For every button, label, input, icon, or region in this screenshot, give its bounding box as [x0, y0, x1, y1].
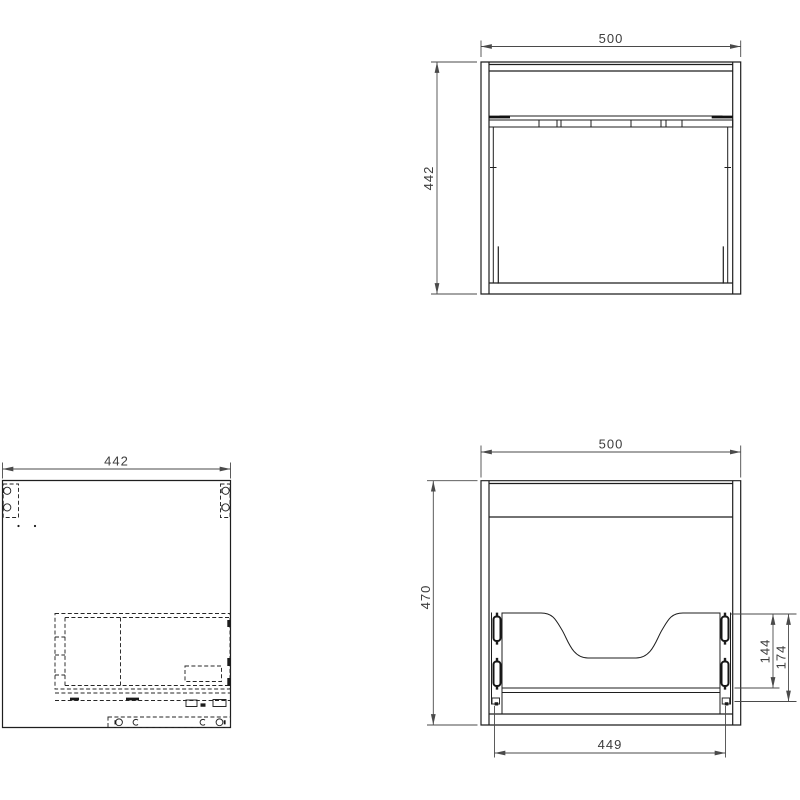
front-dimensions: 500 470 144 174 449 [418, 437, 797, 758]
side-runner-clips [70, 620, 231, 707]
side-depth-label: 442 [104, 454, 129, 469]
side-view: 442 [3, 454, 231, 728]
clip-symbols [133, 719, 205, 725]
runner-feet [492, 698, 730, 704]
rear-hang-rail [489, 116, 733, 127]
front-drawer-runners [492, 613, 731, 706]
rear-back-panel-lower-edges [498, 247, 723, 283]
rear-view: 500 442 [421, 31, 741, 294]
screw-icon [216, 719, 223, 726]
runner-slot-icon [722, 617, 729, 642]
runner-slot-stops [496, 613, 726, 690]
front-drawer-field-label: 174 [774, 645, 789, 670]
cam-lock-icon [4, 504, 11, 511]
rear-width-label: 500 [599, 31, 624, 46]
drawing-sheet: 500 442 442 [0, 0, 800, 800]
front-runner-length-label: 449 [598, 737, 623, 752]
cam-lock-icon [4, 487, 11, 494]
side-drawer-runner-dashed [55, 614, 231, 728]
screw-tabs [115, 720, 226, 724]
cam-lock-slots [3, 489, 221, 510]
side-cam-locks [3, 487, 229, 511]
side-panel-outline [3, 481, 231, 728]
runner-slot-icon [494, 617, 501, 642]
dowel-hole-icon [34, 525, 36, 527]
technical-drawing-canvas: 500 442 442 [0, 0, 800, 800]
dowel-hole-icon [17, 525, 19, 527]
cam-lock-icon [222, 487, 229, 494]
front-recess-label: 144 [758, 639, 773, 664]
cam-lock-icon [222, 504, 229, 511]
side-dowel-holes [17, 525, 36, 527]
side-cam-housings-dashed [3, 484, 230, 518]
side-dimensions: 442 [3, 454, 231, 479]
rear-back-panel-edges [491, 127, 731, 283]
front-view: 500 470 144 174 449 [418, 437, 797, 758]
rear-cabinet-outline [481, 62, 741, 294]
runner-slot-icon [494, 662, 501, 687]
rear-extension-lines [431, 41, 741, 295]
front-width-label: 500 [599, 437, 624, 452]
screw-icon [116, 719, 123, 726]
runner-slot-icon [722, 662, 729, 687]
rear-height-label: 442 [421, 166, 436, 191]
side-bottom-fixings [115, 719, 226, 726]
front-drawer-back-cutout [502, 613, 720, 714]
front-height-label: 470 [418, 585, 433, 610]
runner-feet-pads [495, 702, 729, 705]
